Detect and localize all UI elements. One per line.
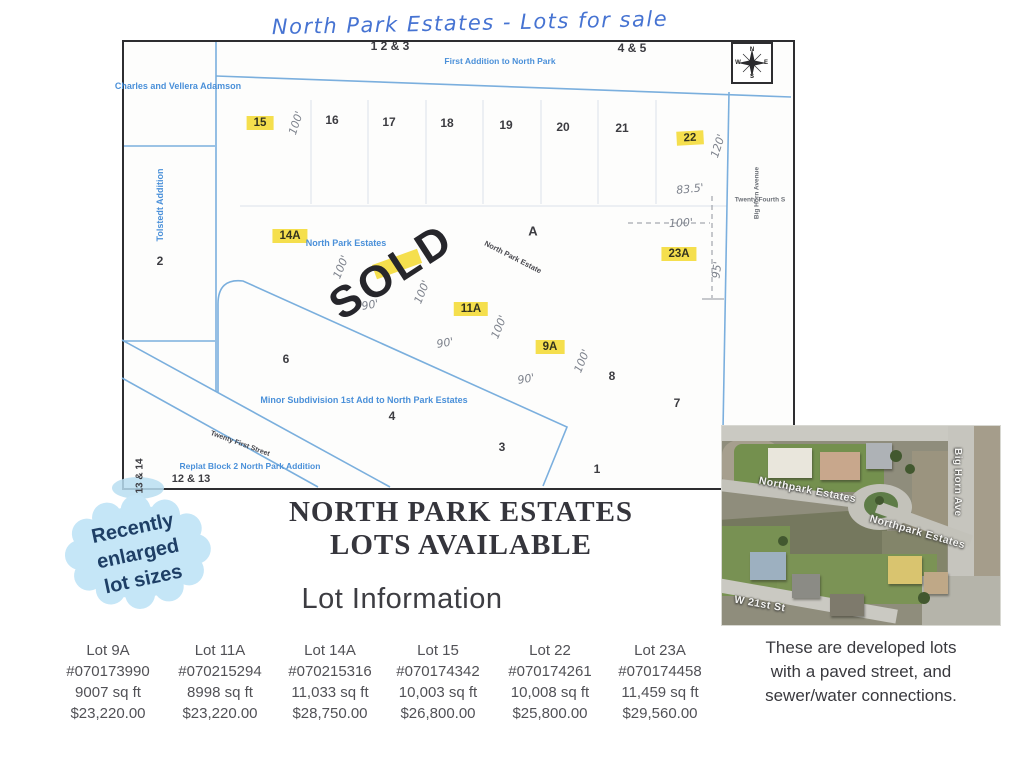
lot-size: 9007 sq ft bbox=[66, 682, 149, 703]
lot-name: Lot 22 bbox=[508, 640, 591, 661]
north-park-estates-label: North Park Estates bbox=[306, 238, 387, 248]
lot-3-label: 3 bbox=[499, 440, 506, 454]
house bbox=[792, 574, 820, 598]
tolstedt-addition-label: Tolstedt Addition bbox=[155, 169, 165, 242]
note-line-2: with a paved street, and bbox=[765, 660, 957, 684]
lot-parcel: #070215316 bbox=[288, 661, 371, 682]
block-a-label: A bbox=[528, 224, 537, 239]
lot-14a-highlight: 14A bbox=[272, 229, 307, 243]
recently-enlarged-badge: Recently enlarged lot sizes bbox=[50, 484, 227, 625]
street-label-big-horn: Big Horn Ave bbox=[952, 448, 963, 517]
lot-1-label: 1 bbox=[594, 462, 601, 476]
lot-7-label: 7 bbox=[674, 396, 681, 410]
lot-price: $23,220.00 bbox=[178, 703, 261, 724]
tree bbox=[778, 536, 788, 546]
note-line-1: These are developed lots bbox=[765, 636, 957, 660]
lot-22-highlight: 22 bbox=[676, 130, 703, 145]
lot-18-label: 18 bbox=[440, 116, 453, 130]
lot-info-column-14a: Lot 14A #070215316 11,033 sq ft $28,750.… bbox=[288, 640, 371, 724]
replat-block-label: Replat Block 2 North Park Addition bbox=[180, 461, 321, 471]
aerial-photo: Northpark Estates Northpark Estates Big … bbox=[722, 426, 1000, 625]
lot-group-top-right: 4 & 5 bbox=[618, 41, 647, 55]
compass-w: W bbox=[735, 60, 741, 66]
owner-label: Charles and Vellera Adamson bbox=[115, 81, 241, 91]
house bbox=[768, 448, 812, 478]
lot-price: $25,800.00 bbox=[508, 703, 591, 724]
lot-name: Lot 11A bbox=[178, 640, 261, 661]
handwritten-title: North Park Estates - Lots for sale bbox=[272, 7, 669, 39]
lot-price: $28,750.00 bbox=[288, 703, 371, 724]
twenty-fourth-street-label: Twenty Fourth S bbox=[735, 197, 785, 204]
lots-12-13-label: 12 & 13 bbox=[172, 473, 211, 485]
compass-e: E bbox=[764, 60, 768, 66]
lot-23a-highlight: 23A bbox=[661, 247, 696, 261]
lot-info-column-22: Lot 22 #070174261 10,008 sq ft $25,800.0… bbox=[508, 640, 591, 724]
lot-name: Lot 23A bbox=[618, 640, 701, 661]
lot-15-highlight: 15 bbox=[247, 116, 274, 130]
lot-parcel: #070173990 bbox=[66, 661, 149, 682]
lot-info-column-9a: Lot 9A #070173990 9007 sq ft $23,220.00 bbox=[66, 640, 149, 724]
lot-parcel: #070174261 bbox=[508, 661, 591, 682]
lot-parcel: #070215294 bbox=[178, 661, 261, 682]
tree bbox=[875, 496, 884, 505]
lot-19-label: 19 bbox=[499, 118, 512, 132]
lot-info-column-11a: Lot 11A #070215294 8998 sq ft $23,220.00 bbox=[178, 640, 261, 724]
minor-subdivision-label: Minor Subdivision 1st Add to North Park … bbox=[260, 395, 467, 405]
lot-info-column-23a: Lot 23A #070174458 11,459 sq ft $29,560.… bbox=[618, 640, 701, 724]
lot-size: 11,459 sq ft bbox=[618, 682, 701, 703]
developed-lots-note: These are developed lots with a paved st… bbox=[765, 636, 957, 708]
compass-rose: N S W E bbox=[731, 42, 773, 84]
lot-size: 10,008 sq ft bbox=[508, 682, 591, 703]
lot-16-label: 16 bbox=[325, 113, 338, 127]
house bbox=[924, 572, 948, 594]
lot-4-label: 4 bbox=[389, 409, 396, 423]
lot-8-label: 8 bbox=[609, 369, 616, 383]
lot-11a-highlight: 11A bbox=[454, 302, 488, 316]
tree bbox=[905, 464, 915, 474]
lot-size: 11,033 sq ft bbox=[288, 682, 371, 703]
lot-6-label: 6 bbox=[283, 352, 290, 366]
lot-info-column-15: Lot 15 #070174342 10,003 sq ft $26,800.0… bbox=[396, 640, 479, 724]
plat-map-border bbox=[122, 40, 795, 490]
lot-21-label: 21 bbox=[615, 121, 628, 135]
compass-n: N bbox=[750, 47, 754, 53]
note-line-3: sewer/water connections. bbox=[765, 684, 957, 708]
lot-parcel: #070174342 bbox=[396, 661, 479, 682]
house bbox=[888, 556, 922, 584]
compass-s: S bbox=[750, 74, 754, 80]
tree bbox=[890, 450, 902, 462]
lot-price: $26,800.00 bbox=[396, 703, 479, 724]
lot-size: 8998 sq ft bbox=[178, 682, 261, 703]
lot-name: Lot 14A bbox=[288, 640, 371, 661]
house bbox=[830, 594, 864, 616]
house bbox=[866, 443, 892, 469]
main-title-line-1: NORTH PARK ESTATES bbox=[289, 496, 633, 529]
lot-information-heading: Lot Information bbox=[302, 583, 503, 616]
lot-name: Lot 15 bbox=[396, 640, 479, 661]
lot-size: 10,003 sq ft bbox=[396, 682, 479, 703]
big-horn-avenue-label: Big Horn Avenue bbox=[754, 167, 761, 219]
first-addition-label: First Addition to North Park bbox=[444, 56, 555, 66]
lot-2-label: 2 bbox=[157, 254, 164, 268]
flyer-page: North Park Estates - Lots for sale bbox=[0, 0, 1012, 768]
lot-17-label: 17 bbox=[382, 115, 395, 129]
main-title-line-2: LOTS AVAILABLE bbox=[330, 529, 592, 562]
lot-parcel: #070174458 bbox=[618, 661, 701, 682]
house bbox=[820, 452, 860, 480]
lot-20-label: 20 bbox=[556, 120, 569, 134]
meas-95: 95' bbox=[710, 261, 725, 279]
lot-price: $29,560.00 bbox=[618, 703, 701, 724]
lot-9a-highlight: 9A bbox=[536, 340, 565, 354]
house bbox=[750, 552, 786, 580]
meas-100-dashed: 100' bbox=[669, 216, 694, 230]
tree bbox=[918, 592, 930, 604]
lot-name: Lot 9A bbox=[66, 640, 149, 661]
lot-group-top-left: 1 2 & 3 bbox=[371, 39, 410, 53]
lot-price: $23,220.00 bbox=[66, 703, 149, 724]
